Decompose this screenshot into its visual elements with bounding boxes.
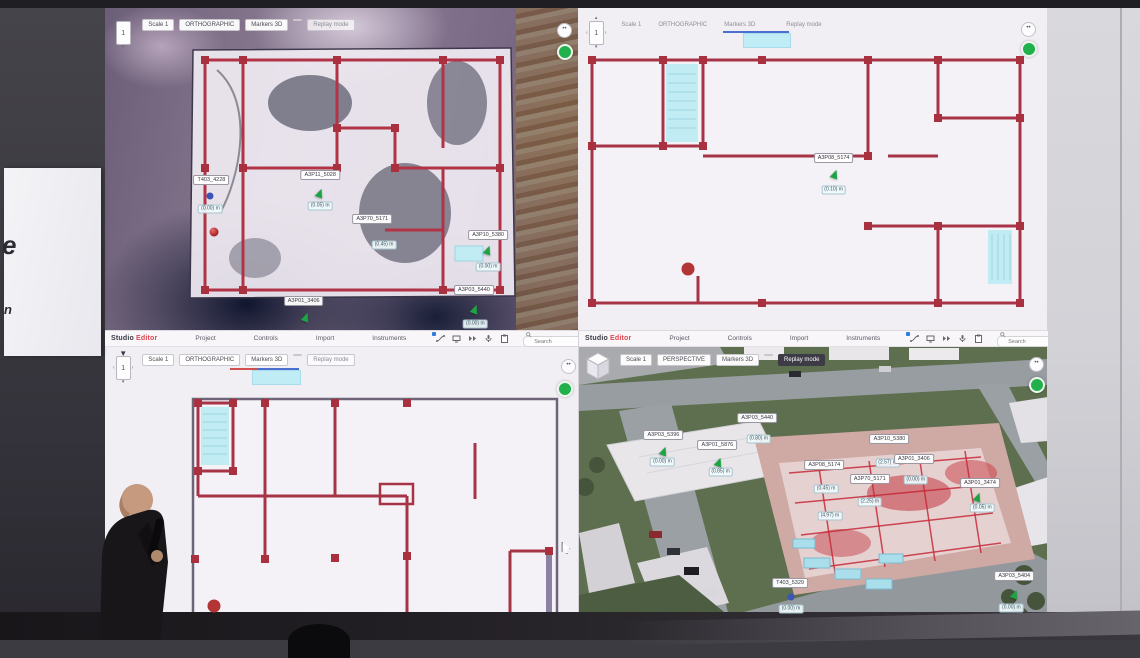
green-arrow-marker [470, 303, 481, 314]
green-arrow-marker [830, 168, 841, 179]
room-ceiling-edge [0, 0, 1140, 8]
blue-sphere-marker [787, 594, 794, 601]
green-arrow-marker [659, 445, 670, 456]
markers-layer: A3P03_5396(0.00) mA3P01_5876(0.85) mA3P0… [579, 331, 1048, 616]
measurement-tag: (0.00) m [903, 475, 928, 484]
marker-label[interactable]: A3P03_5440 [454, 285, 494, 295]
side-screen-text: n [4, 302, 12, 317]
measurement-tag: (0.80) m [746, 435, 771, 444]
marker-label[interactable]: A3P11_5028 [301, 170, 340, 180]
measurement-tag: (0.05) m [970, 504, 995, 513]
measurement-tag: (4.97) m [818, 512, 843, 521]
green-arrow-marker [315, 188, 326, 199]
marker-label[interactable]: A3P03_5440 [737, 413, 777, 423]
marker-label[interactable]: A3P70_5171 [850, 474, 890, 484]
green-arrow-marker [972, 492, 983, 503]
red-sphere-marker [209, 227, 218, 236]
wall-seam [1120, 8, 1122, 615]
measurement-tag: (2.25) m [857, 498, 882, 507]
marker-label[interactable]: A3P10_5380 [468, 230, 508, 240]
measurement-tag: (0.05) m [308, 202, 333, 211]
marker-label[interactable]: A3P01_3474 [960, 478, 1000, 488]
viewport-bottom-right[interactable]: StudioEditor Project Controls Import Ins… [578, 330, 1048, 616]
marker-label[interactable]: A3P01_3406 [894, 454, 934, 464]
red-circle-marker [682, 262, 695, 275]
measurement-tag: (0.45) m [814, 484, 839, 493]
marker-label[interactable]: A3P03_5396 [644, 430, 684, 440]
marker-label[interactable]: A3P08_5174 [804, 460, 844, 470]
markers-layer: T403_4228(0.00) mA3P11_5028(0.05) mA3P70… [105, 8, 578, 330]
measurement-tag: (0.45) m [372, 240, 397, 249]
red-circle-marker [207, 600, 220, 613]
marker-label[interactable]: A3P01_3406 [284, 296, 324, 306]
measurement-tag: (0.00) m [779, 604, 804, 613]
green-arrow-marker [301, 312, 312, 323]
blue-sphere-marker [207, 193, 214, 200]
measurement-tag: (0.85) m [708, 468, 733, 477]
viewport-top-left[interactable]: ▴ ‹ 1 › ▾ Scale 1 ORTHOGRAPHIC Markers 3… [105, 8, 578, 330]
marker-label[interactable]: A3P70_5171 [352, 214, 392, 224]
marker-label[interactable]: A3P03_5404 [994, 571, 1034, 581]
marker-label[interactable]: T403_5329 [772, 578, 808, 588]
marker-label[interactable]: A3P10_5380 [870, 434, 910, 444]
measurement-tag: (0.00) m [198, 205, 223, 214]
presenter-silhouette [90, 462, 190, 640]
mouse-cursor[interactable] [562, 542, 571, 554]
viewport-top-right[interactable]: ▴ ‹ 1 › ▾ Scale 1 ORTHOGRAPHIC Markers 3… [578, 8, 1047, 330]
measurement-tag: (0.00) m [999, 604, 1024, 613]
room-right-wall [1047, 8, 1140, 615]
green-arrow-marker [713, 456, 724, 467]
green-arrow-marker [483, 244, 494, 255]
measurement-tag: (0.00) m [476, 263, 501, 272]
marker-label[interactable]: A3P01_5876 [697, 440, 737, 450]
measurement-tag: (0.00) m [650, 458, 675, 467]
markers-layer: A3P08_5174(0.10) m [578, 8, 1047, 330]
measurement-tag: (0.00) m [463, 319, 488, 328]
audience-head-silhouette [288, 624, 350, 658]
green-arrow-marker [1010, 589, 1021, 600]
measurement-tag: (0.10) m [821, 185, 846, 194]
marker-label[interactable]: T403_4228 [194, 175, 230, 185]
side-screen-text: e [2, 230, 16, 261]
marker-label[interactable]: A3P08_5174 [814, 153, 854, 163]
side-screen: e n [4, 168, 101, 356]
